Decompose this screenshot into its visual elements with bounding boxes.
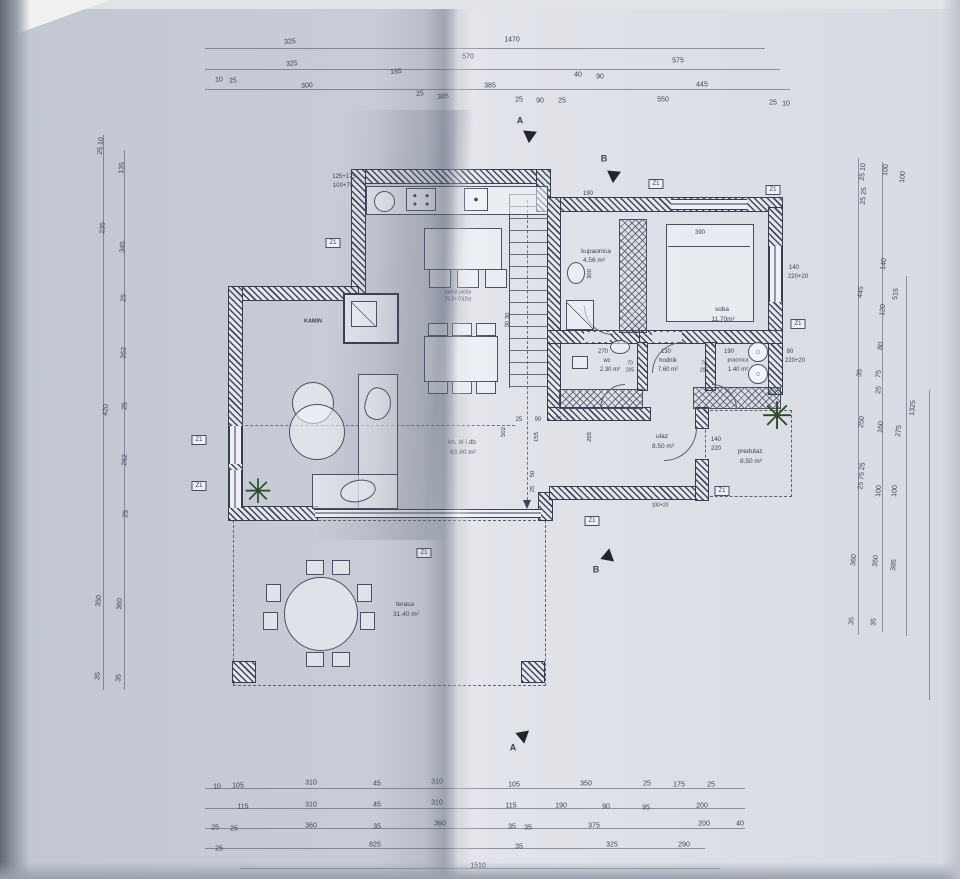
dimension-label: 390 <box>695 230 705 236</box>
dimension-label: 90 <box>535 417 542 423</box>
dimension-label: 40 <box>574 72 582 79</box>
dimension-label: 310 <box>431 779 443 786</box>
dimension-label: 825 <box>369 842 381 849</box>
section-label-a-bottom: A <box>510 744 517 753</box>
dimension-label: 50 <box>530 471 536 478</box>
dimension-label: 135 <box>118 162 126 174</box>
dimension-label: 70 <box>701 362 707 367</box>
dimension-label: 35 <box>856 369 864 377</box>
section-cut-arrow <box>598 548 614 565</box>
dimension-label: 90 <box>602 804 610 811</box>
section-cut-arrow <box>519 125 537 143</box>
dimension-label: 262 <box>120 347 128 359</box>
dimension-label: 25 <box>530 486 536 493</box>
dimension-label: 105 <box>232 783 244 790</box>
dimension-label: 190 <box>724 349 734 355</box>
dimension-label: 325 <box>286 60 298 68</box>
dimension-label: 130 <box>661 349 671 355</box>
dimension-label: 25 <box>215 846 223 853</box>
dimension-label: 25 <box>121 402 129 410</box>
window-type-marker: Z1 <box>416 548 431 558</box>
dimension-label: 40 <box>736 821 744 828</box>
dimension-label: 25 <box>122 510 130 518</box>
dimension-label: 360 <box>305 823 317 830</box>
dimension-label: 35 <box>508 824 516 831</box>
dimension-label: 160 <box>877 421 885 433</box>
dimension-label: 100+20 <box>652 504 669 509</box>
dimension-label: 35 <box>524 825 532 832</box>
dimension-label: 2.30 m² <box>600 367 620 373</box>
dimension-label: 325 <box>284 38 296 46</box>
dimension-label: 100 <box>899 171 907 183</box>
dimension-label: 10 <box>782 101 790 108</box>
dimension-label: 190 <box>555 803 567 810</box>
dimension-label: 25 <box>120 294 128 302</box>
dimension-label: 270 <box>598 349 608 355</box>
dimension-label: 90 <box>596 74 604 81</box>
dimension-label: 25 <box>515 97 523 104</box>
dimension-label: 25 <box>555 417 562 423</box>
dimension-label: 220+20 <box>788 274 808 280</box>
dimension-label: 190 <box>583 191 593 197</box>
dimension-label: 31.40 m² <box>393 612 419 619</box>
section-cut-arrow <box>603 165 621 183</box>
dimension-label: 515 <box>892 288 900 300</box>
dimension-label: 25 25 <box>860 187 869 205</box>
photographed-floor-plan: 3251470325570575185385409044510253002538… <box>0 0 960 879</box>
dimension-label: 265 <box>587 432 593 442</box>
room-label-praonica: praonica <box>727 358 748 364</box>
dimension-label: 25 <box>230 826 238 833</box>
dimension-label: 8.50 m² <box>652 444 674 451</box>
dimension-label: 35 <box>115 674 123 682</box>
dimension-label: 275 <box>895 425 903 437</box>
dimension-label: 70.5+70(2x) <box>445 298 472 303</box>
dimension-label: 90 <box>536 98 544 105</box>
dimension-label: 575 <box>672 58 684 65</box>
dimension-label: radna ploča <box>445 291 471 296</box>
dimension-label: 1.40 m² <box>728 367 748 373</box>
dimension-label: 25 <box>229 77 237 85</box>
dimension-label: 25 75 25 <box>857 462 866 490</box>
labels-layer: 3251470325570575185385409044510253002538… <box>0 0 960 879</box>
room-label-soba: soba <box>715 307 729 314</box>
dimension-label: 25 <box>875 386 883 394</box>
dimension-label: 25 <box>211 825 219 832</box>
window-type-marker: Z1 <box>191 435 206 445</box>
dimension-label: 175 <box>673 782 685 789</box>
section-label-b-mid: B <box>593 566 600 575</box>
dimension-label: 360 <box>116 598 124 610</box>
dimension-label: 155 <box>534 432 540 442</box>
window-type-marker: Z1 <box>765 185 780 195</box>
dimension-label: 35 <box>848 617 856 625</box>
dimension-label: 262 <box>121 454 129 466</box>
dimension-label: 35 <box>94 672 102 680</box>
dimension-label: 310 <box>305 802 317 809</box>
dimension-label: 35 <box>870 618 878 626</box>
dimension-label: 385 <box>484 83 496 90</box>
dimension-label: 220 <box>711 446 721 452</box>
room-label-terasa: terasa <box>396 602 414 609</box>
dimension-label: 345 <box>119 241 127 253</box>
dimension-label: 115 <box>237 804 248 811</box>
dimension-label: 205 <box>626 369 634 374</box>
dimension-label: 10 <box>215 76 223 84</box>
dimension-label: 7.60 m² <box>658 367 678 373</box>
dimension-label: 80 <box>877 342 885 350</box>
dimension-label: 385 <box>437 93 449 101</box>
section-cut-arrow <box>513 726 529 743</box>
dimension-label: 100 <box>891 485 899 497</box>
dimension-label: 1325 <box>909 400 917 416</box>
section-label-a-top: A <box>517 117 524 126</box>
dimension-label: 200 <box>698 821 710 828</box>
dimension-label: 70 <box>627 362 633 367</box>
dimension-label: 350 <box>95 595 103 607</box>
dimension-label: 80 <box>787 349 794 355</box>
dimension-label: 350 <box>580 781 592 788</box>
dimension-label: 8.50 m² <box>740 459 762 466</box>
dimension-label: 502 <box>501 427 507 437</box>
dimension-label: 1510 <box>470 863 486 870</box>
dimension-label: 140 <box>789 265 799 271</box>
dimension-label: 375 <box>588 823 600 830</box>
dimension-label: 115 <box>505 803 516 810</box>
room-label-kupaonica: kupaonica <box>581 249 611 256</box>
dimension-label: 290 <box>678 842 690 849</box>
dimension-label: 325 <box>606 842 618 849</box>
dimension-label: 25 10 <box>859 163 868 181</box>
dimension-label: 350 <box>872 555 880 567</box>
window-type-marker: Z1 <box>584 516 599 526</box>
dimension-label: 45 <box>373 802 381 809</box>
dimension-label: 185 <box>390 68 402 76</box>
dimension-label: 11.70m² <box>711 317 734 324</box>
dimension-label: 25 <box>769 100 777 107</box>
dimension-label: 25 <box>558 98 566 105</box>
dimension-label: 25 10 <box>97 137 105 155</box>
dimension-label: 550 <box>657 97 669 104</box>
dimension-label: 25 <box>416 90 424 98</box>
dimension-label: 205 <box>700 369 708 374</box>
dimension-label: 100 <box>875 485 883 497</box>
room-label-hodnik: hodnik <box>659 358 677 364</box>
room-label-wc: wc <box>603 358 610 364</box>
dimension-label: 445 <box>696 82 708 89</box>
dimension-label: 360 <box>850 554 858 566</box>
dimension-label: 100+75 <box>333 183 353 189</box>
dimension-label: 105 <box>508 782 520 789</box>
window-type-marker: Z1 <box>790 319 805 329</box>
dimension-label: 25 <box>643 781 651 788</box>
fireplace-label: KAMIN <box>304 319 322 325</box>
room-label-ulaz: ulaz <box>656 434 668 441</box>
dimension-label: 35 <box>373 824 381 831</box>
dimension-label: 445 <box>857 286 865 298</box>
dimension-label: 300 <box>587 269 593 279</box>
section-label-b-top: B <box>601 155 608 164</box>
dimension-label: 35 <box>515 844 523 851</box>
plant-icon: ✳ <box>244 475 273 509</box>
dimension-label: 100 <box>882 164 890 176</box>
dimension-label: 140 <box>880 258 888 270</box>
window-type-marker: Z1 <box>648 179 663 189</box>
dimension-label: 4.56 m² <box>583 258 605 265</box>
dimension-label: 200 <box>696 803 708 810</box>
dimension-label: 220+20 <box>785 358 805 364</box>
dimension-label: 385 <box>890 559 898 571</box>
dimension-label: 300 <box>301 82 313 90</box>
dimension-label: 120 <box>879 304 887 316</box>
dimension-label: 25 <box>707 782 715 789</box>
window-type-marker: Z1 <box>191 481 206 491</box>
dimension-label: 310 <box>305 780 317 787</box>
dimension-label: 45 <box>373 781 381 788</box>
room-label-living: kh, bl i db <box>448 440 476 447</box>
dimension-label: 310 <box>431 800 443 807</box>
dimension-label: 360 <box>434 821 446 828</box>
dimension-label: 235 <box>99 222 107 234</box>
dimension-label: 63.80 m² <box>450 450 476 457</box>
dimension-label: 140 <box>711 437 721 443</box>
dimension-label: 570 <box>462 54 474 61</box>
dimension-label: 420 <box>102 404 110 416</box>
plant-icon: ✳ <box>761 398 793 436</box>
dimension-label: 30 30 <box>505 312 512 327</box>
dimension-label: 125+175 <box>332 174 356 180</box>
room-label-predulaz: predulaz <box>738 449 763 456</box>
dimension-label: 95 <box>642 805 650 812</box>
dimension-label: 25 <box>516 417 523 423</box>
dimension-label: 1470 <box>504 37 520 44</box>
dimension-label: 250 <box>858 416 866 428</box>
window-type-marker: Z1 <box>714 486 729 496</box>
window-type-marker: Z1 <box>325 238 340 248</box>
dimension-label: 10 <box>213 784 221 791</box>
dimension-label: 75 <box>875 370 883 378</box>
